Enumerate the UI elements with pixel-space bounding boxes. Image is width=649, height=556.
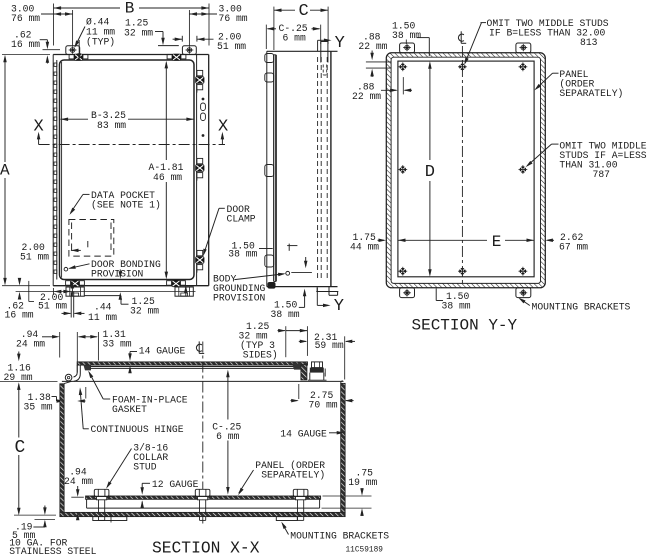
svg-text:38 mm: 38 mm (442, 300, 471, 311)
svg-text:14 GAUGE: 14 GAUGE (139, 346, 186, 357)
svg-text:813: 813 (580, 37, 598, 48)
svg-text:16 mm: 16 mm (5, 310, 34, 321)
svg-text:E: E (492, 233, 502, 251)
svg-text:SEPARATELY): SEPARATELY) (559, 88, 623, 99)
svg-text:16 mm: 16 mm (11, 39, 40, 50)
svg-text:6 mm: 6 mm (283, 32, 306, 43)
svg-text:X: X (34, 118, 44, 137)
svg-text:6 mm: 6 mm (216, 431, 239, 442)
svg-text:51 mm: 51 mm (217, 41, 246, 52)
svg-text:Y: Y (335, 34, 345, 53)
svg-text:STAINLESS STEEL: STAINLESS STEEL (9, 546, 96, 556)
svg-text:CLAMP: CLAMP (227, 214, 256, 225)
svg-text:X: X (218, 118, 228, 137)
svg-text:11C59189: 11C59189 (346, 546, 384, 554)
svg-text:A: A (0, 161, 10, 179)
svg-text:76 mm: 76 mm (219, 13, 248, 24)
svg-text:B: B (125, 0, 135, 18)
svg-text:83 mm: 83 mm (97, 120, 126, 131)
svg-text:MOUNTING BRACKETS: MOUNTING BRACKETS (532, 302, 631, 313)
svg-text:787: 787 (593, 169, 611, 180)
svg-text:32 mm: 32 mm (130, 305, 159, 316)
svg-text:(TYP): (TYP) (86, 37, 115, 48)
svg-text:PROVISION: PROVISION (213, 293, 266, 304)
svg-text:70 mm: 70 mm (309, 399, 338, 410)
svg-text:C: C (299, 2, 309, 21)
svg-text:38 mm: 38 mm (271, 309, 300, 320)
svg-text:D: D (425, 163, 435, 182)
svg-text:76 mm: 76 mm (11, 13, 40, 24)
svg-text:24 mm: 24 mm (16, 339, 45, 350)
svg-text:67 mm: 67 mm (559, 241, 588, 252)
svg-text:CONTINUOUS HINGE: CONTINUOUS HINGE (91, 424, 184, 435)
svg-text:19 mm: 19 mm (348, 477, 377, 488)
svg-text:12 GAUGE: 12 GAUGE (152, 479, 199, 490)
svg-text:32 mm: 32 mm (124, 27, 153, 38)
svg-text:33 mm: 33 mm (103, 339, 132, 350)
svg-text:59 mm: 59 mm (315, 340, 344, 351)
svg-text:38 mm: 38 mm (228, 249, 257, 260)
svg-text:STUD: STUD (133, 462, 156, 473)
svg-text:22 mm: 22 mm (358, 41, 387, 52)
svg-text:SECTION X-X: SECTION X-X (152, 538, 260, 556)
svg-text:Y: Y (334, 297, 344, 316)
svg-text:24 mm: 24 mm (64, 476, 93, 487)
svg-text:14 GAUGE: 14 GAUGE (280, 429, 327, 440)
svg-text:22 mm: 22 mm (352, 91, 381, 102)
svg-text:PROVISION: PROVISION (91, 268, 144, 279)
svg-text:(SEE NOTE 1): (SEE NOTE 1) (91, 200, 161, 211)
svg-text:C: C (15, 438, 26, 458)
svg-text:MOUNTING BRACKETS: MOUNTING BRACKETS (290, 530, 389, 541)
svg-text:SEPARATELY): SEPARATELY) (261, 469, 325, 480)
svg-text:38 mm: 38 mm (392, 30, 421, 41)
svg-text:.44: .44 (94, 301, 112, 312)
svg-text:51 mm: 51 mm (20, 251, 49, 262)
svg-text:SECTION Y-Y: SECTION Y-Y (412, 316, 518, 334)
svg-text:51 mm: 51 mm (38, 300, 67, 311)
svg-text:44 mm: 44 mm (350, 241, 379, 252)
svg-text:SIDES): SIDES) (243, 350, 278, 361)
svg-text:11 mm: 11 mm (88, 312, 117, 323)
svg-text:35 mm: 35 mm (24, 401, 53, 412)
svg-text:GASKET: GASKET (112, 404, 147, 415)
svg-text:46 mm: 46 mm (153, 172, 182, 183)
